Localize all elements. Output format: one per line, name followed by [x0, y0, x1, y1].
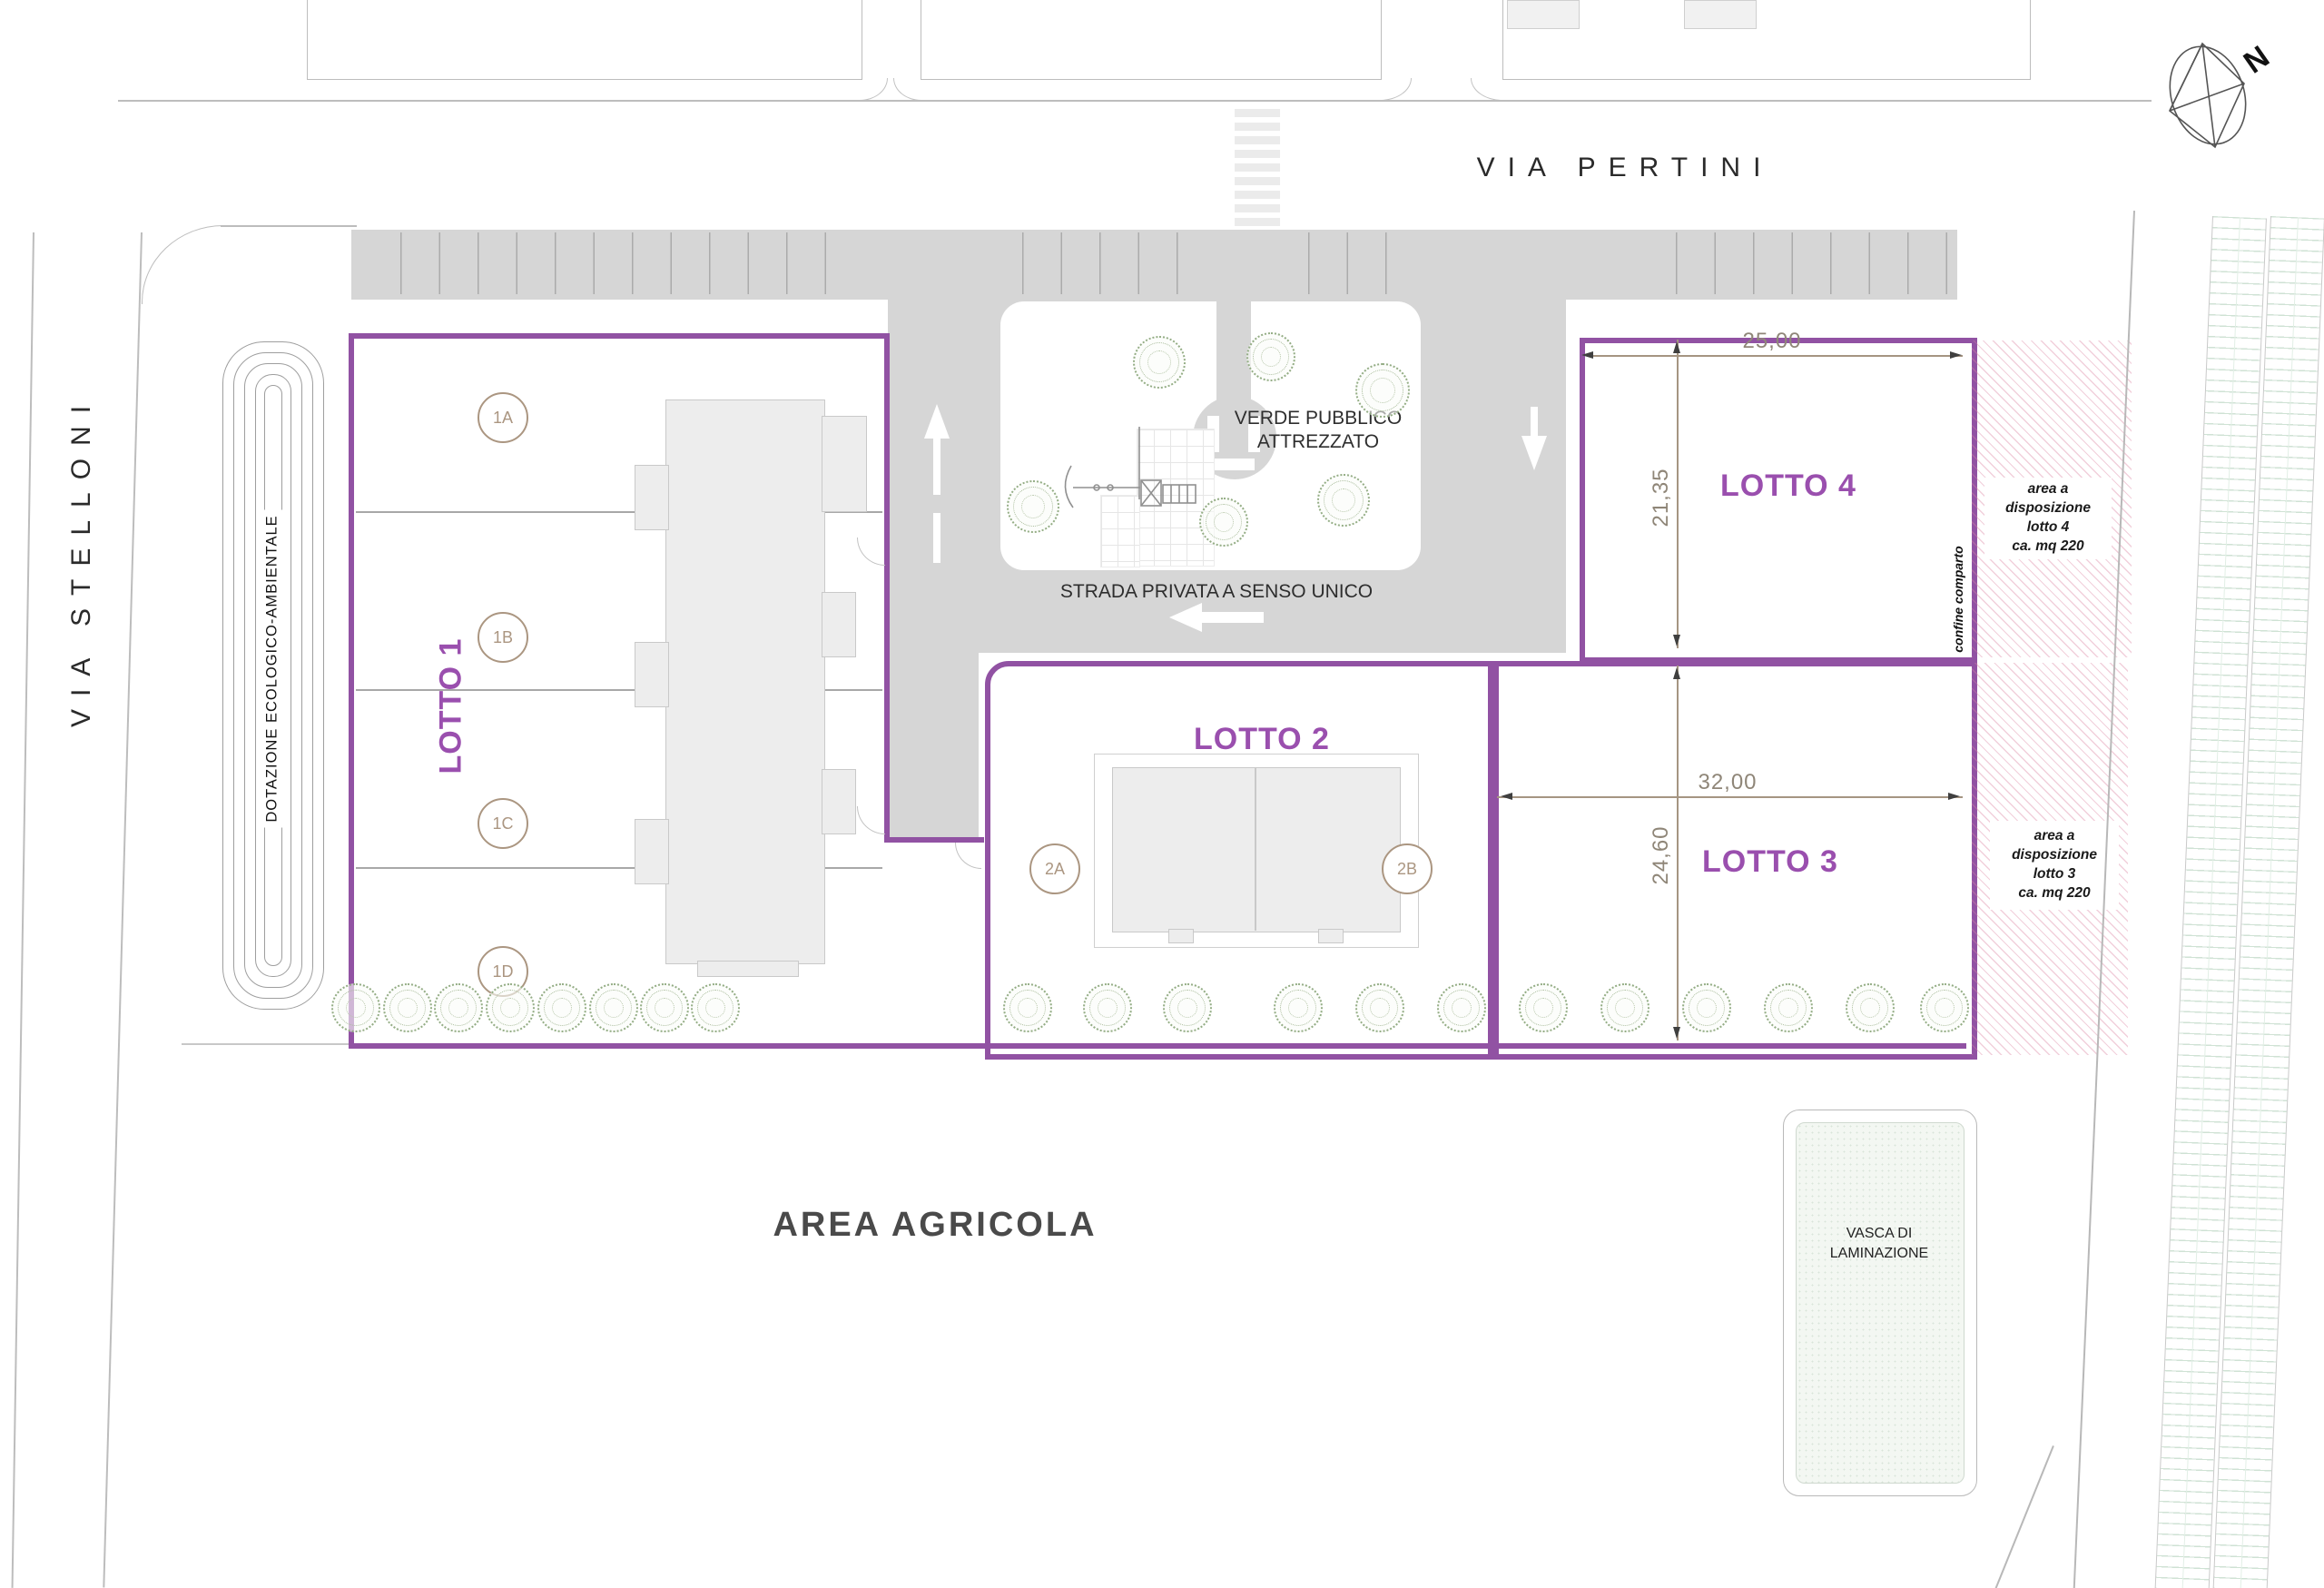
parking-stall-lines — [1639, 232, 1952, 294]
boundary-label: confine comparto — [1951, 499, 1965, 699]
street-edge-line — [12, 232, 34, 1588]
tree-icon — [1246, 332, 1295, 381]
dim-label-lot3-height: 24,60 — [1649, 764, 1674, 946]
pedestrian-crossing — [1235, 109, 1280, 234]
existing-building-north-b — [921, 0, 1382, 80]
arrow-down-shaft — [1531, 407, 1538, 436]
tree-icon — [1355, 363, 1410, 418]
north-label: N — [2238, 39, 2276, 80]
street-label-via-stelloni: VIA STELLONI — [66, 288, 97, 833]
tree-icon — [1600, 983, 1649, 1032]
tree-icon — [1682, 983, 1731, 1032]
lot4-label: LOTTO 4 — [1679, 469, 1897, 504]
field-boundary-line — [1994, 1445, 2053, 1588]
reserve-label-lot3: area adisposizione lotto 3ca. mq 220 — [1990, 821, 2119, 910]
parking-stall-lines — [1271, 232, 1416, 294]
driveway-curb-curve — [860, 78, 888, 101]
dim-arrow — [1673, 635, 1680, 646]
boundary-stub-line — [182, 1043, 349, 1045]
tree-icon — [1083, 983, 1132, 1032]
lot1-building-bump — [635, 642, 669, 707]
park-path — [1216, 230, 1251, 411]
tree-icon — [1519, 983, 1568, 1032]
lot2-building-party-wall — [1255, 767, 1256, 931]
tree-icon — [1274, 983, 1323, 1032]
tree-icon — [1317, 474, 1370, 527]
lot1-building-bump — [822, 592, 856, 657]
lot1-boundary-left — [349, 333, 354, 1049]
tree-icon — [1199, 498, 1248, 547]
unit-badge-2b: 2B — [1382, 843, 1433, 894]
dim-label-lot4-height: 21,35 — [1649, 407, 1674, 588]
lot1-boundary-top — [349, 333, 890, 339]
dim-line-lot4-width — [1587, 355, 1963, 357]
tree-icon — [1920, 983, 1969, 1032]
unit-badge-2a: 2A — [1029, 843, 1080, 894]
arrow-up-icon — [924, 404, 950, 439]
lot1-building-bump — [822, 769, 856, 834]
dim-arrow — [1673, 1027, 1680, 1039]
dim-line-lot3-height — [1677, 666, 1679, 1041]
dim-arrow — [1581, 351, 1593, 359]
unit-badge-1c: 1C — [478, 798, 528, 849]
tree-icon — [589, 983, 638, 1032]
area-agricola-label: AREA AGRICOLA — [663, 1206, 1207, 1245]
detention-basin-label: VASCA DILAMINAZIONE — [1796, 1224, 1963, 1263]
lot1-building-bump — [635, 465, 669, 530]
tree-icon — [640, 983, 689, 1032]
tree-icon — [1133, 336, 1186, 389]
lot3-label: LOTTO 3 — [1661, 844, 1879, 880]
tree-icon — [486, 983, 535, 1032]
lane-dash — [933, 513, 940, 563]
existing-building-north-c — [1502, 0, 2031, 80]
tree-icon — [331, 983, 380, 1032]
garage-bay — [1507, 0, 1580, 29]
garage-bay — [1684, 0, 1757, 29]
tree-icon — [1007, 480, 1059, 533]
parking-stall-lines — [363, 232, 862, 294]
dim-line-lot3-width — [1497, 796, 1963, 798]
road-edge-line — [118, 100, 2152, 102]
unit-badge-1b: 1B — [478, 612, 528, 663]
lot1-label: LOTTO 1 — [434, 570, 469, 843]
dim-arrow — [1501, 793, 1512, 800]
existing-building-north-a — [307, 0, 862, 80]
dim-arrow — [1950, 351, 1962, 359]
dim-arrow — [1948, 793, 1960, 800]
lot2-building-porch — [1168, 929, 1194, 943]
private-road-label: STRADA PRIVATA A SENSO UNICO — [1035, 581, 1398, 603]
driveway-curb-curve — [893, 78, 921, 101]
driveway-curb-curve — [1380, 78, 1412, 101]
lot1-building-base — [697, 961, 799, 977]
dim-label-lot4-width: 25,00 — [1681, 329, 1863, 354]
sidewalk-edge-line — [221, 225, 357, 227]
lot1-building-main — [665, 399, 825, 964]
arrow-down-icon — [1521, 436, 1547, 470]
tree-icon — [691, 983, 740, 1032]
tree-icon — [1846, 983, 1895, 1032]
tree-icon — [1163, 983, 1212, 1032]
lot2-label: LOTTO 2 — [1153, 722, 1371, 757]
reserve-label-lot4: area adisposizione lotto 4ca. mq 220 — [1984, 478, 2112, 559]
site-plan: VIA PERTINI N VIA STELLONI DOTAZIONE ECO… — [0, 0, 2324, 1588]
lots-boundary-south — [349, 1043, 1966, 1049]
dim-arrow — [1673, 667, 1680, 679]
tree-icon — [434, 983, 483, 1032]
tree-icon — [383, 983, 432, 1032]
gate-swing-arc — [857, 806, 885, 834]
dim-arrow — [1673, 341, 1680, 353]
detention-basin — [1796, 1122, 1965, 1484]
park-label: VERDE PUBBLICOATTREZZATO — [1200, 407, 1436, 455]
eco-strip-label: DOTAZIONE ECOLOGICO-AMBIENTALE — [264, 397, 281, 942]
lot1-building-bump — [635, 819, 669, 884]
unit-badge-1a: 1A — [478, 392, 528, 443]
lot1-building-wing — [822, 416, 867, 512]
site-edge-line — [103, 232, 142, 1587]
north-compass-icon: N — [2142, 27, 2297, 163]
tree-icon — [1003, 983, 1052, 1032]
tree-icon — [537, 983, 586, 1032]
lot2-building — [1112, 767, 1401, 932]
tree-icon — [1764, 983, 1813, 1032]
dim-line-lot4-height — [1677, 340, 1679, 648]
curb-corner-curve — [142, 225, 226, 304]
gate-swing-arc — [955, 843, 981, 869]
tree-icon — [1437, 983, 1486, 1032]
lot2-building-porch — [1318, 929, 1344, 943]
driveway-curb-curve — [1471, 78, 1502, 101]
gate-swing-arc — [857, 538, 885, 566]
tree-icon — [1355, 983, 1404, 1032]
arrow-left-shaft — [1200, 612, 1264, 623]
lot1-boundary-right — [884, 333, 890, 843]
parking-stall-lines — [985, 232, 1207, 294]
street-label-via-pertini: VIA PERTINI — [1344, 153, 1906, 183]
arrow-left-icon — [1169, 603, 1202, 632]
arrow-up-shaft — [933, 439, 940, 495]
